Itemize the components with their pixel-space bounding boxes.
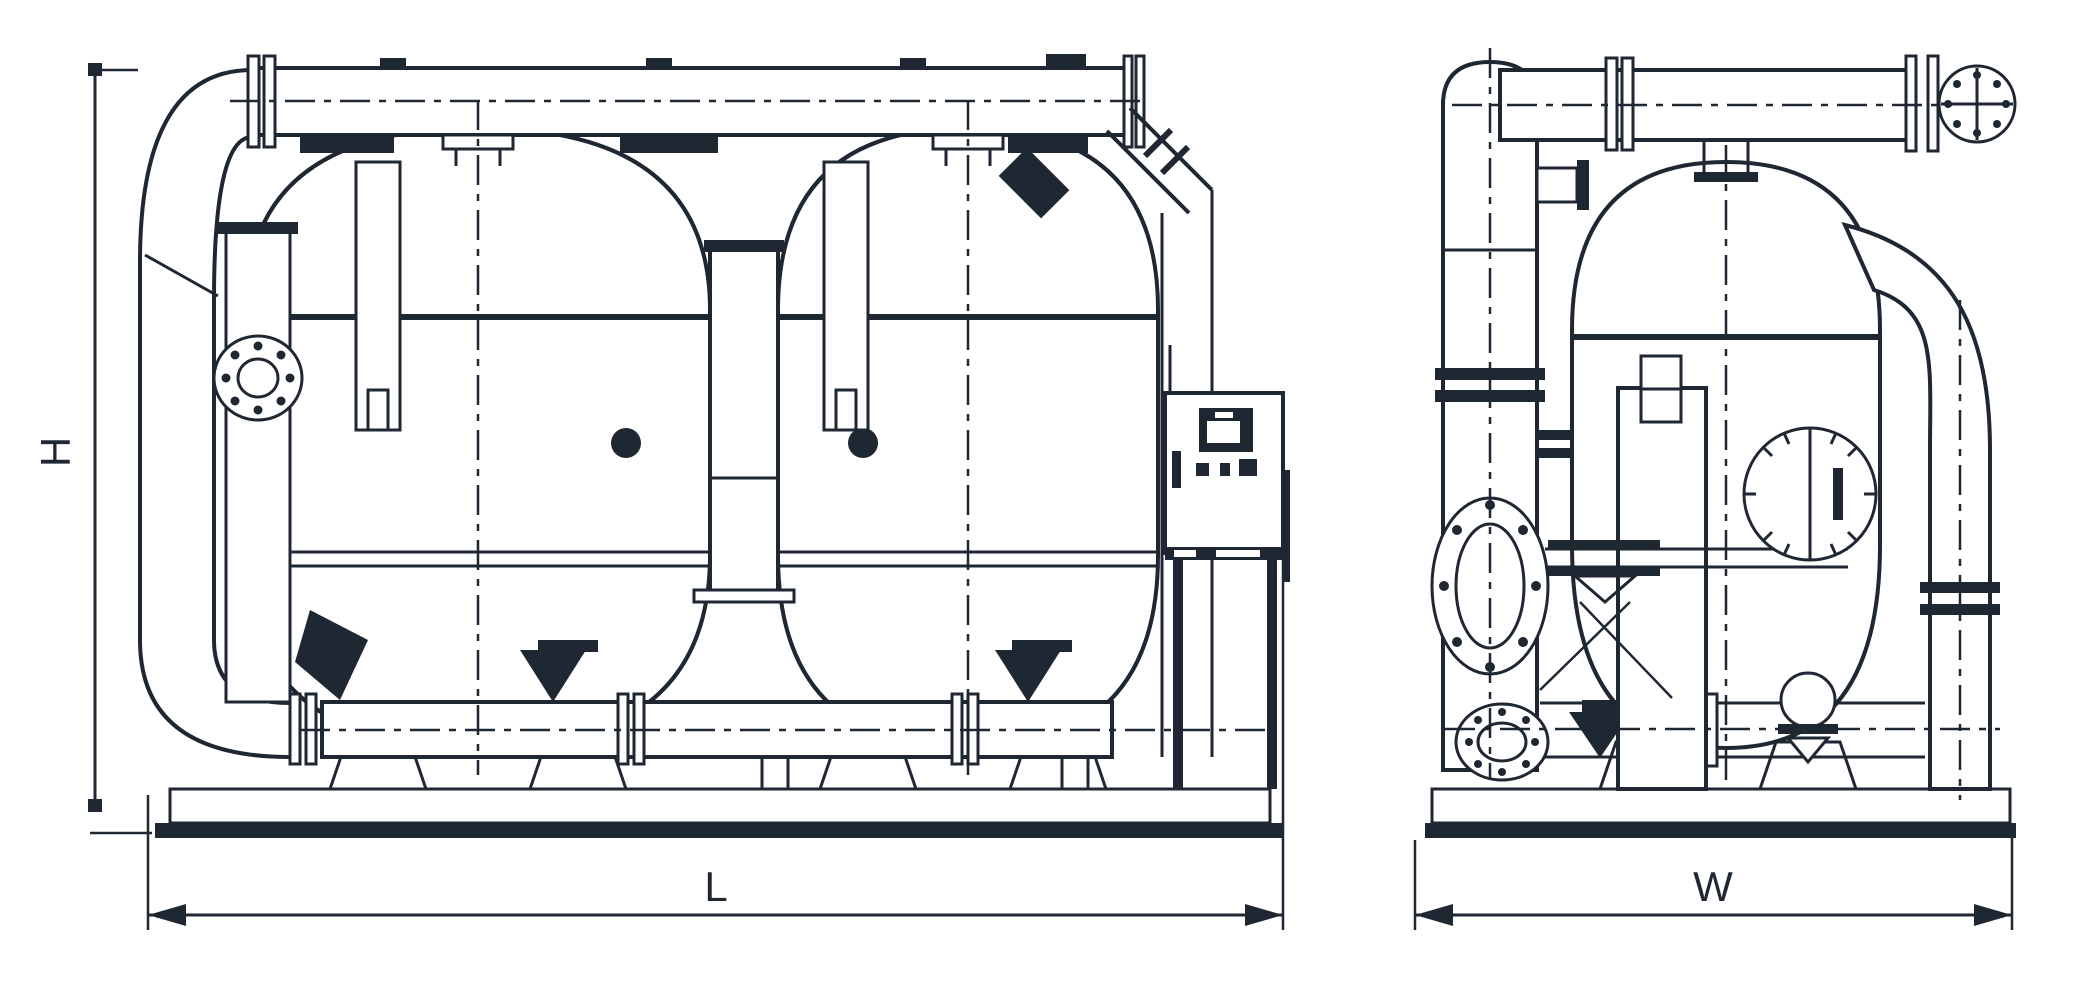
- drawing-canvas: H L W: [0, 0, 2082, 1000]
- base-skid-front: [155, 789, 1283, 838]
- panel-button: [1196, 463, 1209, 476]
- height-dimension-label: H: [32, 437, 79, 467]
- control-panel: [1165, 345, 1290, 789]
- top-pipe-side: [1500, 56, 2015, 151]
- left-riser-piping: [140, 70, 316, 764]
- panel-button: [1239, 459, 1257, 476]
- lifting-hangers: [356, 162, 868, 430]
- panel-screen: [1207, 421, 1240, 443]
- width-dimension-label: W: [1693, 863, 1733, 910]
- valve-body: [520, 650, 586, 702]
- dimension-width: W: [1415, 838, 2012, 930]
- base-skid-side: [1425, 789, 2016, 838]
- panel-leg: [1173, 560, 1183, 789]
- valve-body: [295, 610, 368, 700]
- top-manifold: [248, 54, 1144, 166]
- lower-nozzle: [1778, 673, 1838, 762]
- panel-button: [1220, 463, 1230, 476]
- nozzle-dot-right: [848, 428, 878, 458]
- front-view: [140, 54, 1290, 838]
- side-view: [1425, 48, 2016, 838]
- manway-flange: [1744, 428, 1876, 560]
- length-dimension-label: L: [704, 863, 727, 910]
- panel-leg: [1267, 560, 1277, 789]
- nozzle-dot-left: [611, 428, 641, 458]
- center-column: [694, 240, 794, 602]
- side-left-riser: [1432, 62, 1589, 780]
- dimension-height: H: [32, 63, 152, 833]
- valve-body: [995, 650, 1061, 702]
- technical-drawing: H L W: [0, 0, 2082, 1000]
